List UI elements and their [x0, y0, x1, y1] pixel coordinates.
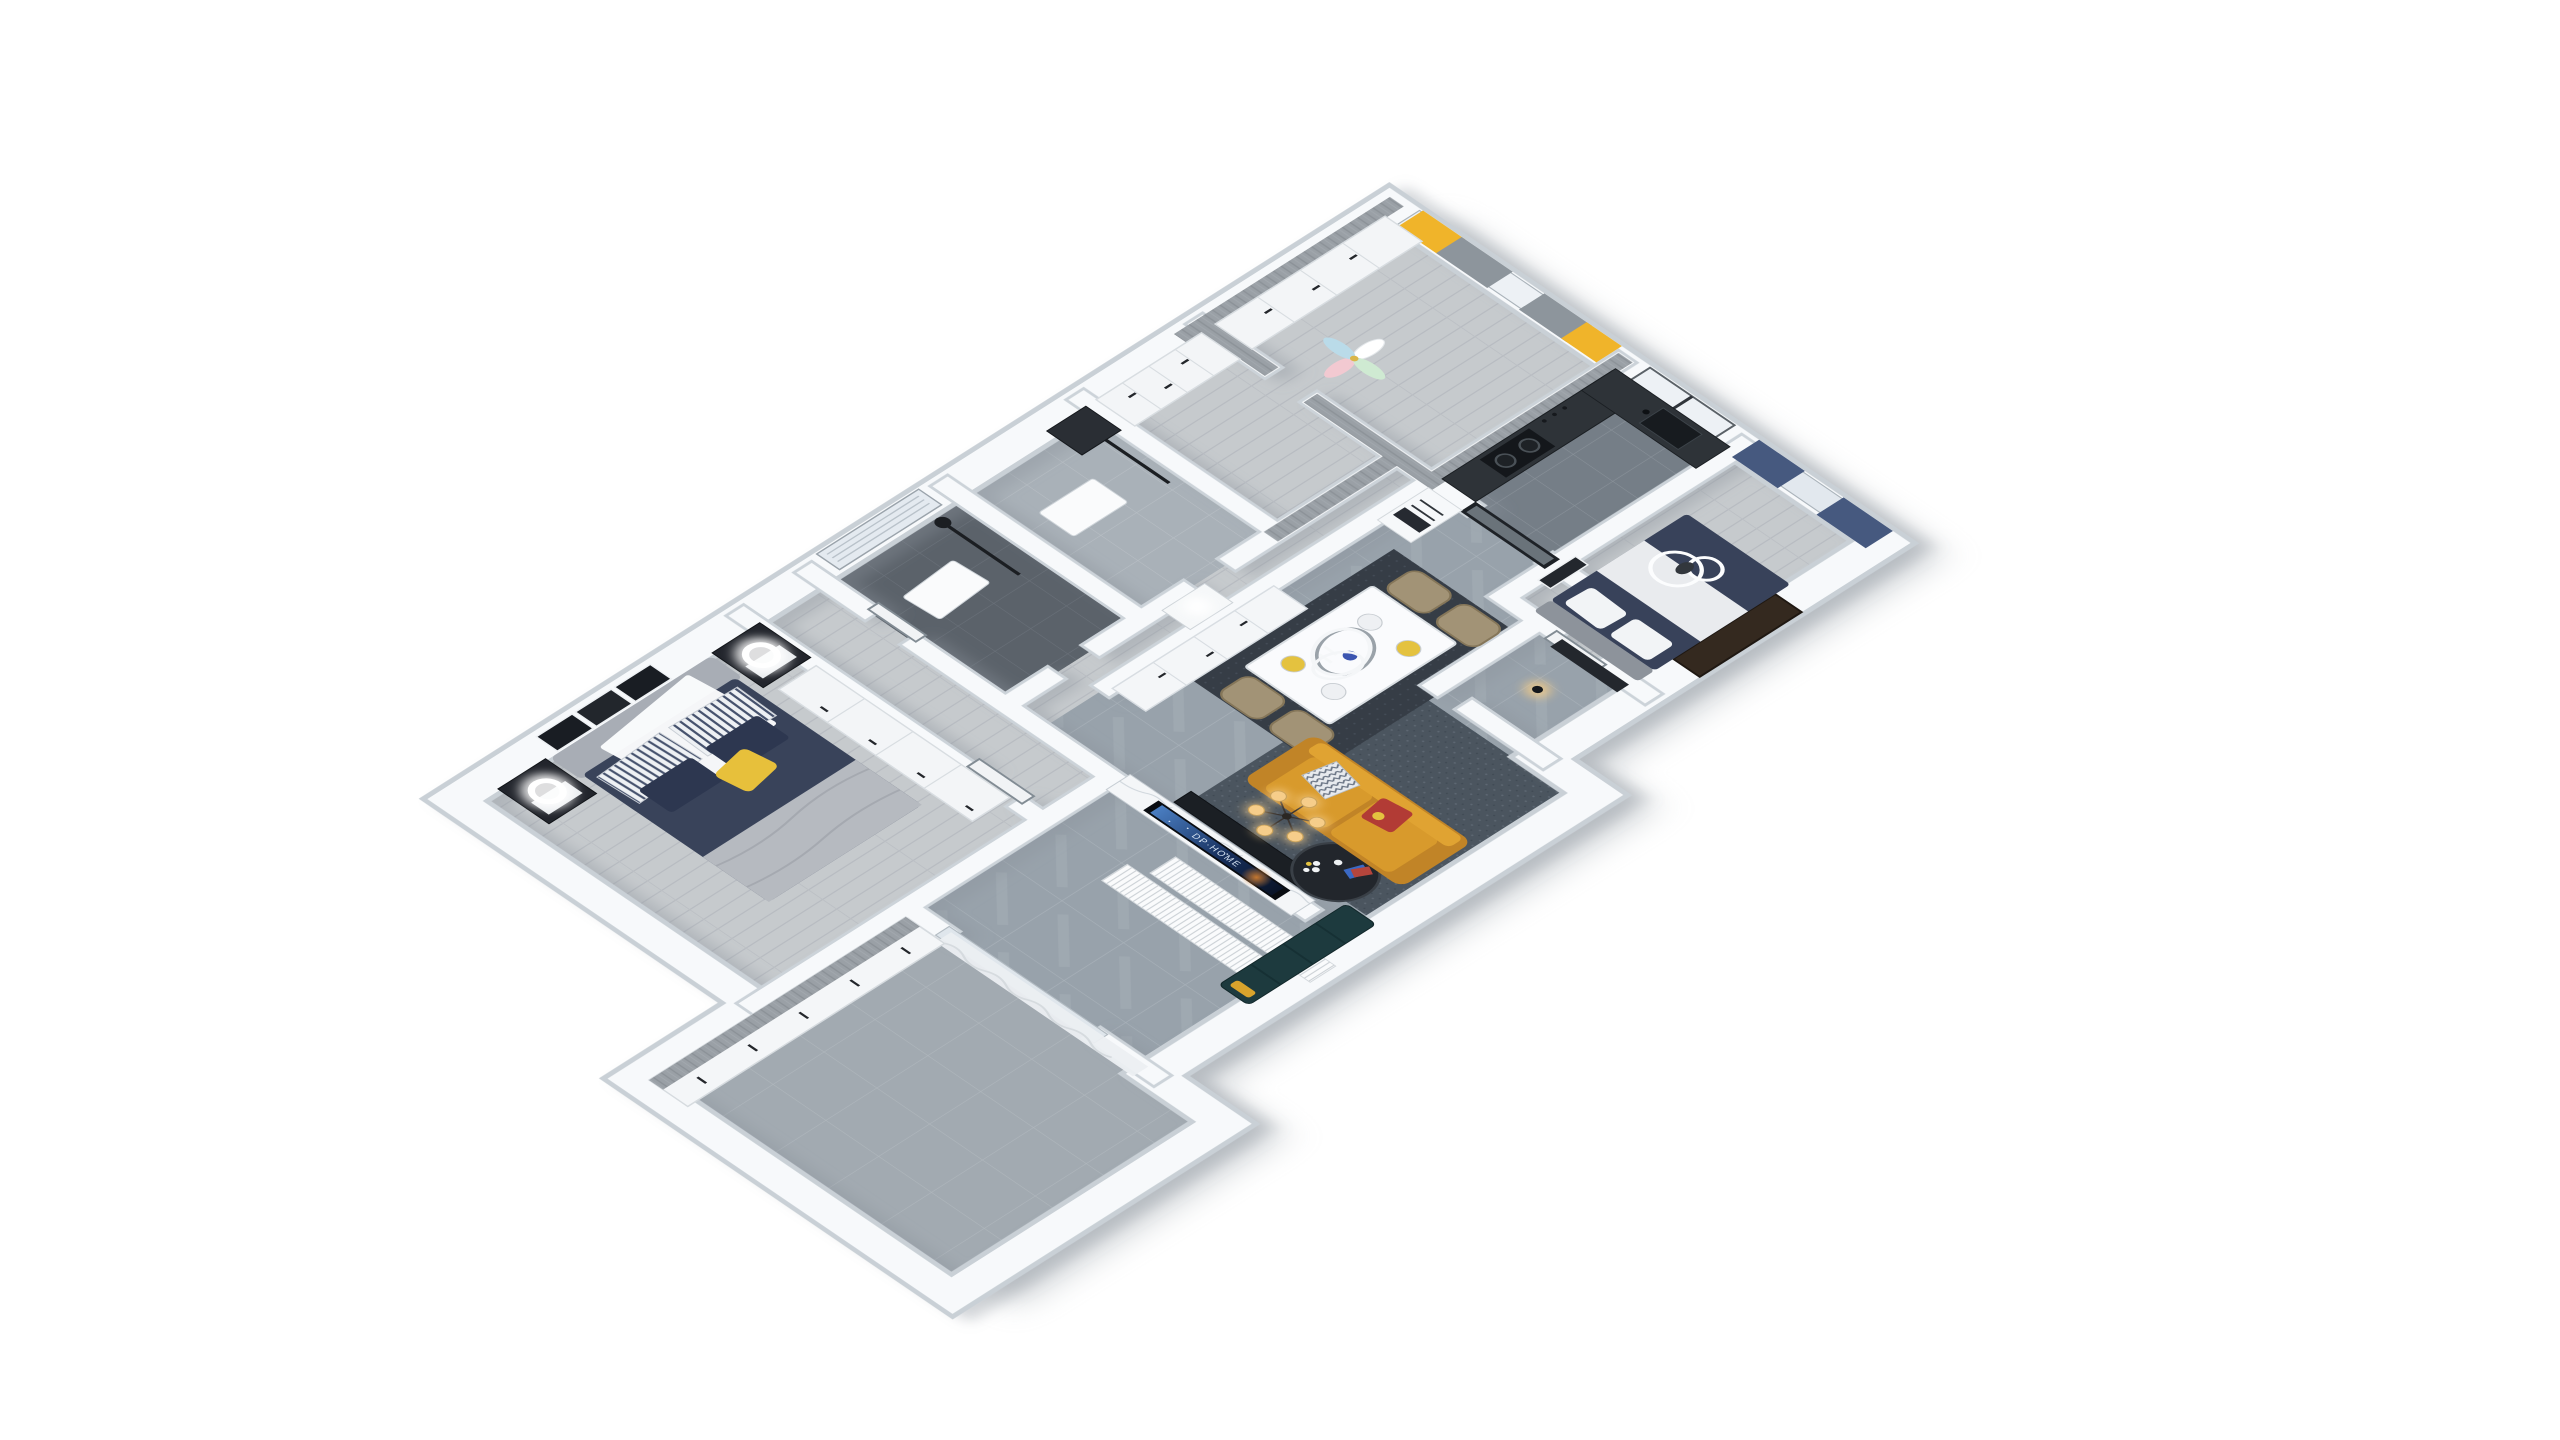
render-canvas: DP·HOME: [0, 0, 2560, 1440]
floorplan-render: DP·HOME: [0, 0, 2560, 1440]
apartment: DP·HOME: [324, 184, 2067, 1322]
